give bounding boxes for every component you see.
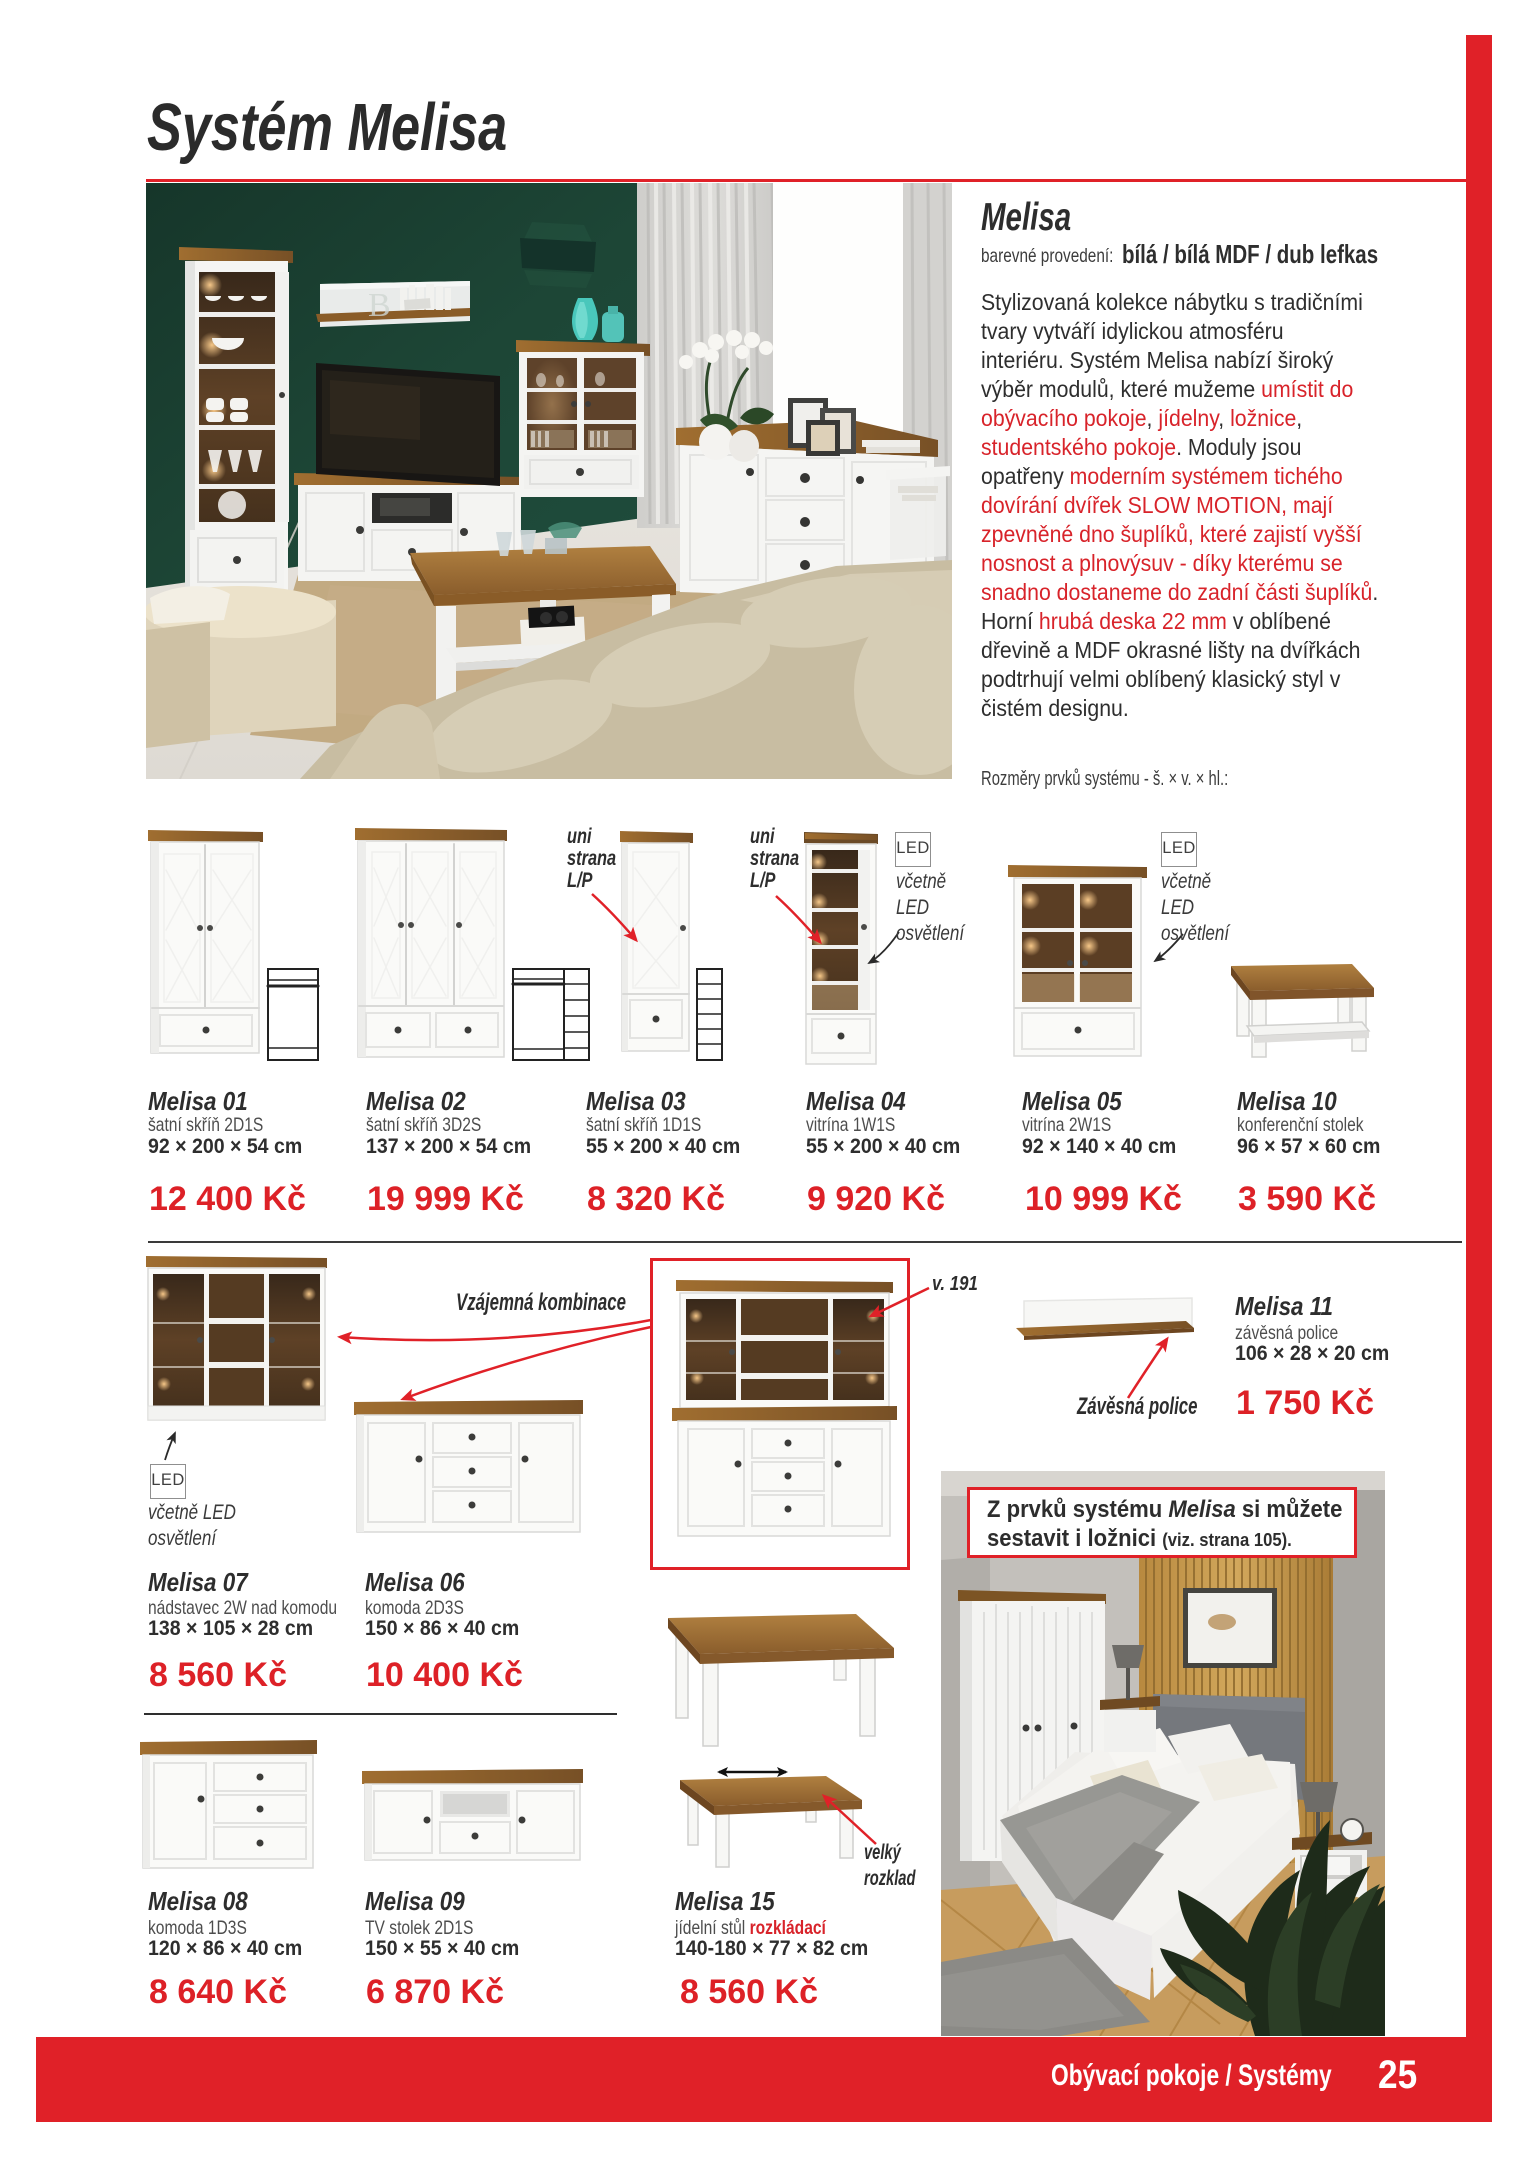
svg-text:B: B [368, 287, 391, 324]
